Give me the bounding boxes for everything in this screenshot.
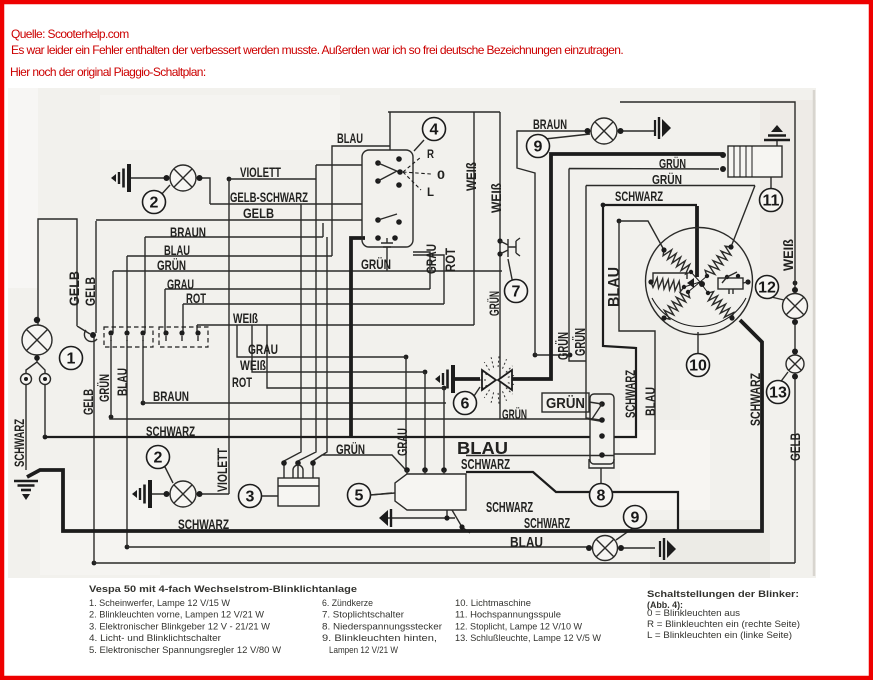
svg-text:BLAU: BLAU xyxy=(164,242,190,258)
svg-text:SCHWARZ: SCHWARZ xyxy=(178,516,229,532)
svg-text:9: 9 xyxy=(534,139,543,156)
svg-text:12. Stoplicht, Lampe 12 V/10 W: 12. Stoplicht, Lampe 12 V/10 W xyxy=(455,621,582,632)
svg-text:VIOLETT: VIOLETT xyxy=(214,448,230,492)
svg-text:SCHWARZ: SCHWARZ xyxy=(747,373,763,426)
svg-text:11. Hochspannungsspule: 11. Hochspannungsspule xyxy=(455,610,561,621)
svg-text:5. Elektronischer Spannungsreg: 5. Elektronischer Spannungsregler 12 V/8… xyxy=(89,645,281,656)
svg-text:9. Blinkleuchten hinten,: 9. Blinkleuchten hinten, xyxy=(322,633,437,644)
svg-text:Lampen 12 V/21 W: Lampen 12 V/21 W xyxy=(329,645,398,656)
svg-text:9: 9 xyxy=(631,510,640,527)
svg-text:ROT: ROT xyxy=(442,248,458,272)
svg-text:SCHWARZ: SCHWARZ xyxy=(524,515,570,532)
svg-text:Schaltstellungen der Blinker:: Schaltstellungen der Blinker: xyxy=(647,589,799,600)
svg-text:0 = Blinkleuchten aus: 0 = Blinkleuchten aus xyxy=(647,608,740,619)
svg-text:13: 13 xyxy=(769,385,787,402)
svg-text:GRÜN: GRÜN xyxy=(572,328,589,356)
svg-text:GRAU: GRAU xyxy=(423,244,439,274)
svg-text:BLAU: BLAU xyxy=(510,534,543,551)
svg-text:5: 5 xyxy=(355,488,364,505)
svg-text:4: 4 xyxy=(430,122,439,139)
svg-text:8. Niederspannungsstecker: 8. Niederspannungsstecker xyxy=(322,621,442,632)
svg-text:GRÜN: GRÜN xyxy=(361,256,391,272)
svg-text:GELB: GELB xyxy=(787,433,803,461)
svg-text:SCHWARZ: SCHWARZ xyxy=(615,188,663,204)
svg-text:GRÜN: GRÜN xyxy=(502,406,527,422)
svg-text:0: 0 xyxy=(437,168,445,182)
svg-text:WEIß: WEIß xyxy=(780,239,796,271)
svg-text:7. Stoplichtschalter: 7. Stoplichtschalter xyxy=(322,610,404,621)
svg-text:7: 7 xyxy=(512,284,521,301)
svg-text:BLAU: BLAU xyxy=(642,387,658,416)
svg-text:GRÜN: GRÜN xyxy=(652,172,682,187)
svg-text:GRÜN: GRÜN xyxy=(555,332,572,360)
svg-text:GELB: GELB xyxy=(243,205,274,221)
svg-text:WEIß: WEIß xyxy=(463,162,479,191)
svg-text:GRAU: GRAU xyxy=(394,428,410,456)
svg-text:GRAU: GRAU xyxy=(248,341,278,357)
svg-text:GELB: GELB xyxy=(82,277,98,306)
svg-text:L: L xyxy=(427,185,434,199)
svg-text:SCHWARZ: SCHWARZ xyxy=(11,419,27,467)
svg-text:GELB: GELB xyxy=(80,389,96,415)
svg-text:10. Lichtmaschine: 10. Lichtmaschine xyxy=(455,598,531,609)
svg-text:GRÜN: GRÜN xyxy=(486,291,502,316)
svg-text:GRÜN: GRÜN xyxy=(96,374,112,402)
svg-text:BRAUN: BRAUN xyxy=(533,116,567,132)
svg-text:WEIß: WEIß xyxy=(240,357,266,373)
svg-text:SCHWARZ: SCHWARZ xyxy=(146,423,195,439)
svg-text:GELB: GELB xyxy=(66,271,82,306)
svg-text:8: 8 xyxy=(597,488,606,505)
svg-text:WEIß: WEIß xyxy=(233,310,258,326)
svg-text:R: R xyxy=(427,147,434,161)
svg-text:1: 1 xyxy=(67,351,76,368)
svg-text:R = Blinkleuchten ein (recht: R = Blinkleuchten ein (rechte Seite) xyxy=(647,619,800,630)
svg-text:GRÜN: GRÜN xyxy=(157,257,186,273)
svg-text:L = Blinkleuchten ein (linke: L = Blinkleuchten ein (linke Seite) xyxy=(647,630,792,641)
svg-text:4. Licht- und Blinklichtschalt: 4. Licht- und Blinklichtschalter xyxy=(89,633,221,644)
svg-text:BRAUN: BRAUN xyxy=(153,388,189,404)
svg-text:BLAU: BLAU xyxy=(606,267,623,307)
svg-text:GRÜN: GRÜN xyxy=(336,441,365,457)
svg-text:2. Blinkleuchten vorne, Lampen: 2. Blinkleuchten vorne, Lampen 12 V/21 W xyxy=(89,610,264,621)
svg-text:Quelle: Scooterhelp.com: Quelle: Scooterhelp.com xyxy=(11,27,129,41)
svg-text:Vespa 50 mit 4-fach Wechselstr: Vespa 50 mit 4-fach Wechselstrom-Blinkli… xyxy=(89,584,357,595)
svg-text:6. Zündkerze: 6. Zündkerze xyxy=(322,598,373,609)
svg-text:GRÜN: GRÜN xyxy=(546,395,585,412)
svg-text:2: 2 xyxy=(154,450,163,467)
svg-text:ROT: ROT xyxy=(232,374,252,390)
svg-text:2: 2 xyxy=(150,195,159,212)
svg-text:3. Elektronischer Blinkgeber 1: 3. Elektronischer Blinkgeber 12 V - 21/2… xyxy=(89,621,270,632)
svg-text:SCHWARZ: SCHWARZ xyxy=(486,499,533,516)
svg-text:GELB-SCHWARZ: GELB-SCHWARZ xyxy=(230,189,308,205)
svg-text:BRAUN: BRAUN xyxy=(170,224,206,240)
svg-text:1. Scheinwerfer, Lampe 12 V/15: 1. Scheinwerfer, Lampe 12 V/15 W xyxy=(89,598,230,609)
svg-text:Hier noch der original Piaggio: Hier noch der original Piaggio-Schaltpla… xyxy=(10,65,206,79)
svg-text:GRÜN: GRÜN xyxy=(659,156,686,171)
svg-text:Es war leider ein Fehler entha: Es war leider ein Fehler enthalten der v… xyxy=(11,43,623,57)
svg-text:BLAU: BLAU xyxy=(114,368,130,396)
svg-text:VIOLETT: VIOLETT xyxy=(240,164,281,180)
svg-text:10: 10 xyxy=(689,358,707,375)
svg-text:SCHWARZ: SCHWARZ xyxy=(622,370,638,418)
svg-text:6: 6 xyxy=(461,396,470,413)
svg-text:BLAU: BLAU xyxy=(337,130,363,146)
svg-text:13. Schlußleuchte, Lampe 12 V/: 13. Schlußleuchte, Lampe 12 V/5 W xyxy=(455,633,601,644)
svg-text:ROT: ROT xyxy=(186,290,206,306)
svg-text:BLAU: BLAU xyxy=(457,438,508,458)
svg-text:11: 11 xyxy=(763,193,780,210)
svg-text:12: 12 xyxy=(758,280,776,297)
svg-text:WEIß: WEIß xyxy=(488,183,504,213)
svg-text:3: 3 xyxy=(246,489,255,506)
svg-text:SCHWARZ: SCHWARZ xyxy=(461,456,510,473)
